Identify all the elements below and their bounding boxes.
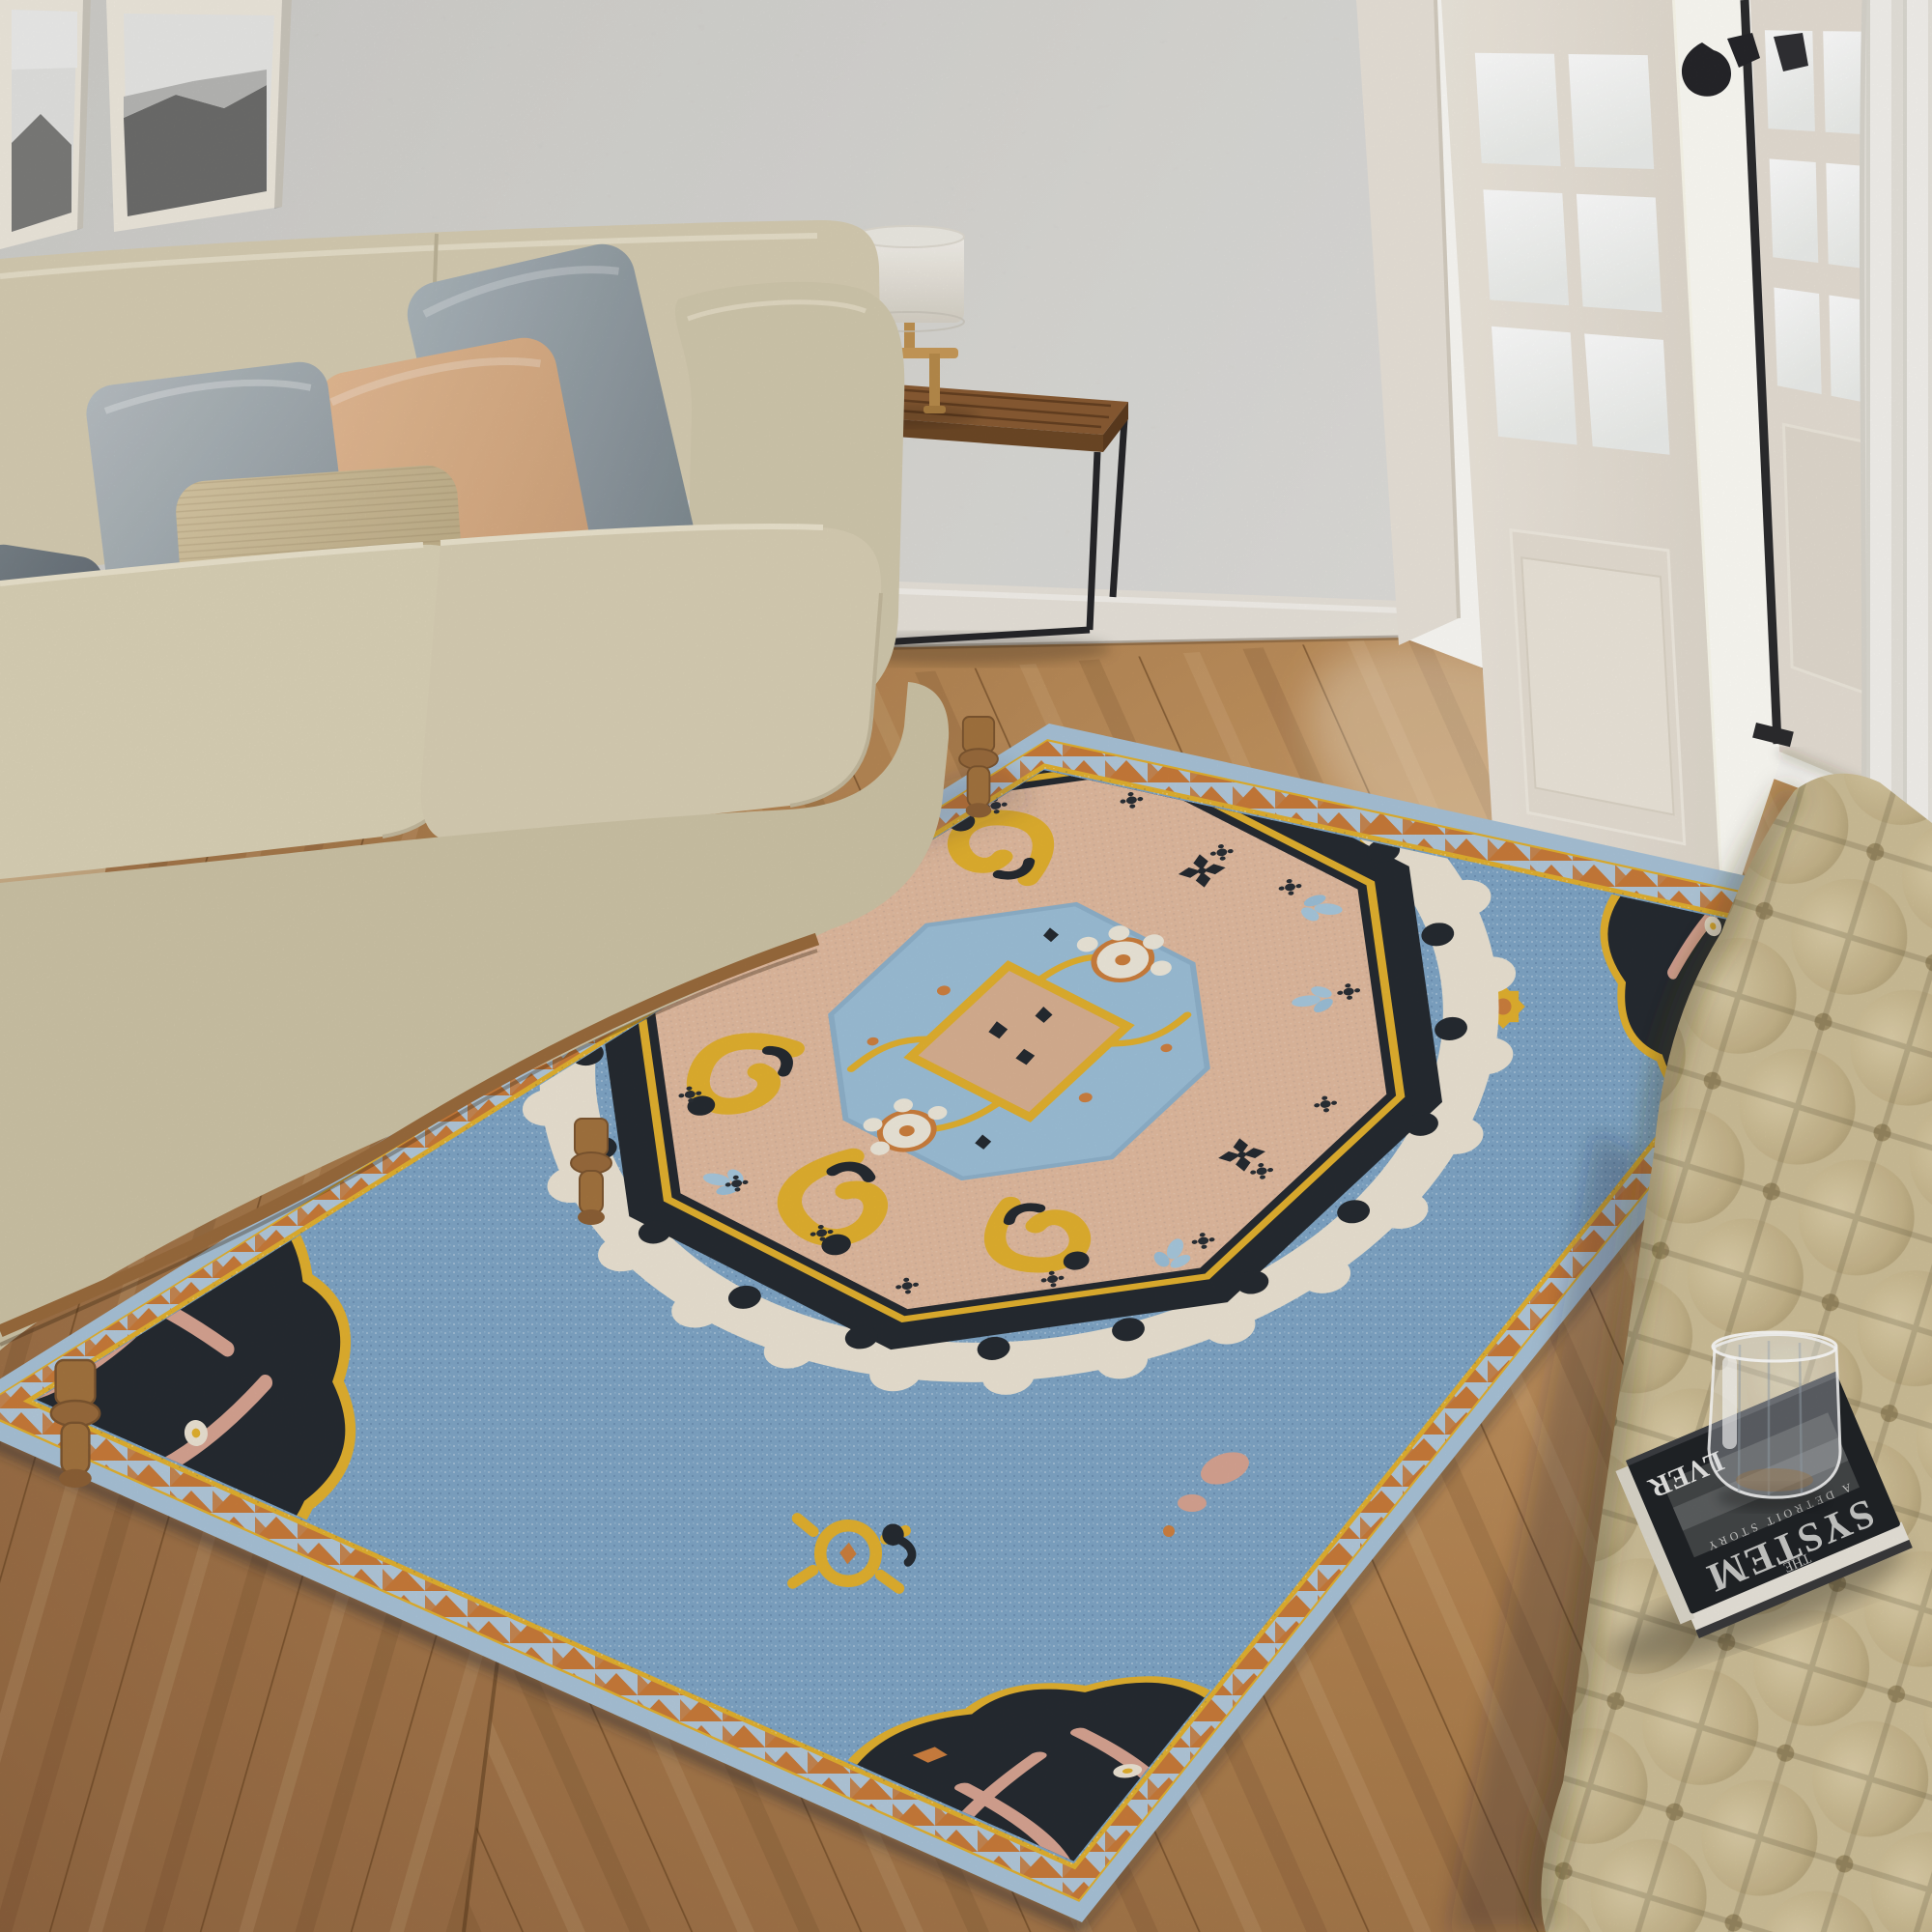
living-room-render: LVER A DETROIT STORY SYSTEM THE	[0, 0, 1932, 1932]
film-grain-overlay	[0, 0, 1932, 1932]
